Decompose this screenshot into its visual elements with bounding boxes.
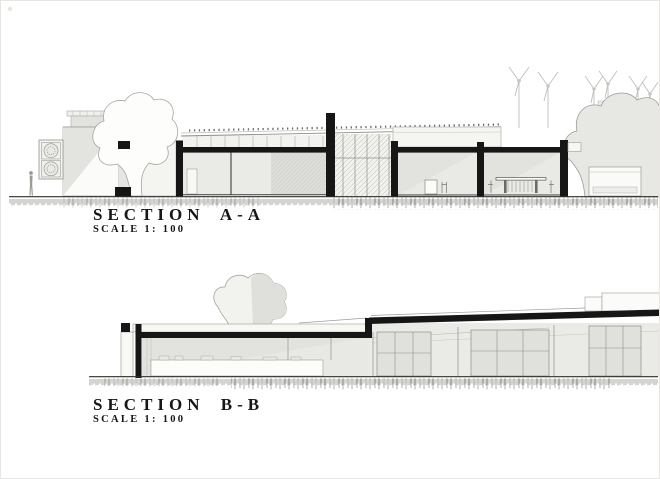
cut-sill <box>115 187 131 197</box>
section-bb-drawing <box>89 273 660 389</box>
cut-lintel <box>118 141 130 149</box>
section-bb-scale: SCALE 1: 100 <box>93 415 264 426</box>
section-bb-title: SECTION B-B <box>93 396 264 413</box>
section-aa-drawing <box>9 67 660 209</box>
roof-parapet-step <box>585 297 602 311</box>
wind-turbine-icon <box>538 72 558 128</box>
interior-right-b <box>369 323 660 377</box>
glazed-atrium <box>335 134 391 197</box>
hall-right <box>393 127 560 195</box>
hall-left <box>183 135 333 195</box>
scan-artifact <box>8 7 12 11</box>
medallion-panel <box>39 140 63 179</box>
human-figure <box>29 171 33 195</box>
drawing-sheet: SECTION A-A SCALE 1: 100 SECTION B-B SCA… <box>0 0 660 479</box>
grass-hatch-b <box>89 377 658 389</box>
parapet-cap-right <box>568 143 581 152</box>
section-aa-caption: SECTION A-A SCALE 1: 100 <box>93 206 265 236</box>
section-aa-scale: SCALE 1: 100 <box>93 225 265 236</box>
roof-parapet-volume <box>602 293 660 311</box>
roof-parapet-outline <box>393 127 501 147</box>
roof-slab-b <box>133 324 369 332</box>
interior-left-b <box>142 337 369 377</box>
glazed-panels <box>377 326 641 376</box>
wind-turbine-icon <box>509 67 529 128</box>
tree-b <box>214 273 287 332</box>
site-structure <box>589 167 641 196</box>
section-bb-caption: SECTION B-B SCALE 1: 100 <box>93 396 264 426</box>
cabinet <box>187 169 197 194</box>
column-b <box>121 332 133 377</box>
section-aa-title: SECTION A-A <box>93 206 265 223</box>
counter <box>151 356 323 376</box>
